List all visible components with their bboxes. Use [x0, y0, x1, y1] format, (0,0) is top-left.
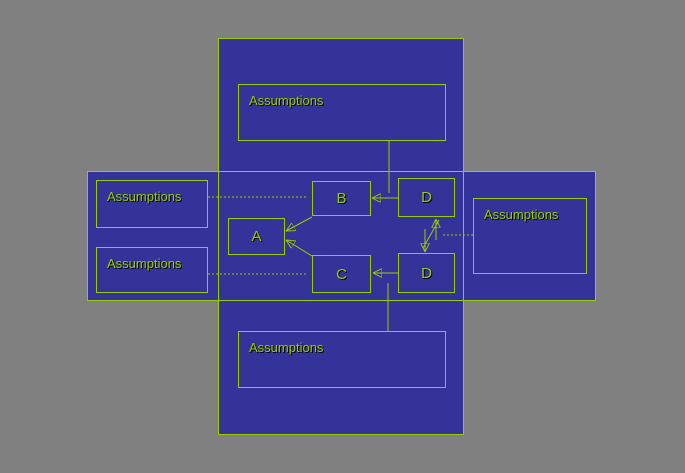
- assumptions-box-bottom: Assumptions: [238, 331, 446, 388]
- node-a: A: [228, 218, 285, 255]
- node-c-label: C: [336, 266, 347, 283]
- node-d-upper-label: D: [421, 189, 432, 206]
- assumptions-box-right-label: Assumptions: [484, 207, 558, 222]
- assumptions-box-bottom-label: Assumptions: [249, 340, 323, 355]
- slide-canvas: Assumptions Assumptions Assumptions Assu…: [0, 0, 685, 473]
- node-d-lower: D: [398, 253, 455, 293]
- assumptions-box-right: Assumptions: [473, 198, 587, 274]
- node-d-upper: D: [398, 178, 455, 217]
- assumptions-box-top-label: Assumptions: [249, 93, 323, 108]
- node-a-label: A: [251, 228, 261, 245]
- node-d-lower-label: D: [421, 265, 432, 282]
- node-b: B: [312, 181, 371, 216]
- assumptions-box-left-lower-label: Assumptions: [107, 256, 181, 271]
- assumptions-box-left-lower: Assumptions: [96, 247, 208, 293]
- assumptions-box-left-upper: Assumptions: [96, 180, 208, 228]
- assumptions-box-top: Assumptions: [238, 84, 446, 141]
- node-b-label: B: [336, 190, 346, 207]
- node-c: C: [312, 255, 371, 293]
- assumptions-box-left-upper-label: Assumptions: [107, 189, 181, 204]
